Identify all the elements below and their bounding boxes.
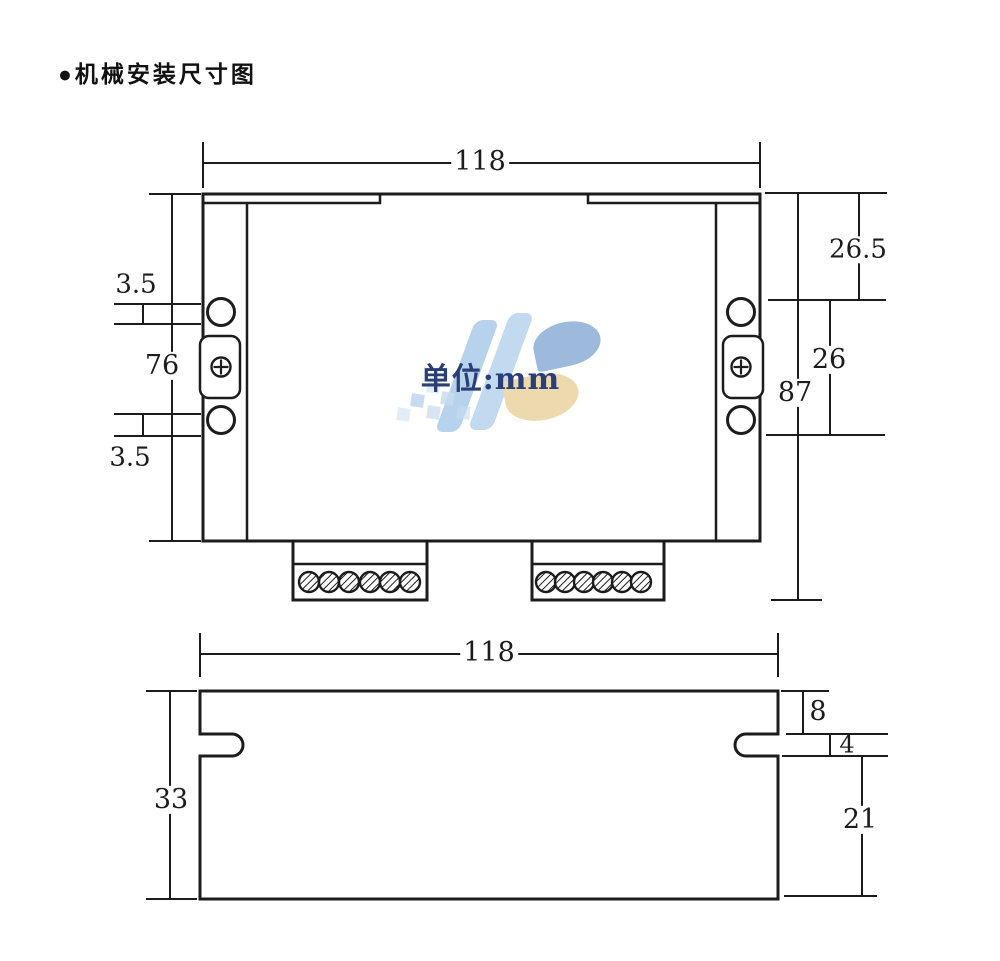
top-view-outline [200, 194, 763, 541]
dim-topview-width: 118 [451, 148, 509, 176]
dim-topview-right-mid: 26 [809, 346, 849, 374]
dim-topview-offset-bottom: 3.5 [109, 444, 150, 471]
dim-sideview-width: 118 [460, 639, 518, 667]
dim-topview-total: 87 [775, 379, 815, 407]
side-view-outline [200, 691, 778, 899]
dim-sideview-height: 33 [151, 786, 191, 814]
side-view-dimension-lines [147, 634, 887, 899]
terminal-block-right [532, 541, 664, 600]
top-view-screws [212, 358, 751, 377]
dim-topview-right-top: 26.5 [826, 236, 890, 263]
drawing-canvas: ●机械安装尺寸图 单位:mm [0, 0, 1000, 961]
dim-topview-span: 76 [142, 352, 182, 380]
top-view-mount-holes [208, 299, 755, 434]
dim-topview-offset-top: 3.5 [115, 271, 156, 298]
dim-sideview-top-to-slot: 8 [809, 698, 826, 726]
dim-sideview-slot-to-bottom: 21 [840, 806, 880, 834]
dim-sideview-slot-height: 4 [839, 732, 854, 757]
terminal-block-left [293, 541, 427, 600]
